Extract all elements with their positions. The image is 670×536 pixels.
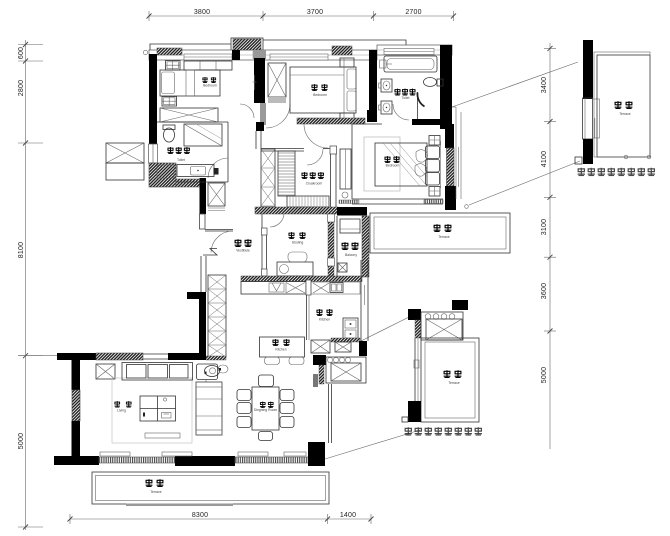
svg-text:Cloakroom: Cloakroom: [306, 182, 323, 186]
svg-text:Terrace: Terrace: [438, 235, 449, 239]
svg-text:4100: 4100: [541, 151, 548, 167]
svg-text:1400: 1400: [340, 512, 356, 519]
svg-text:8100: 8100: [18, 242, 25, 258]
svg-text:3700: 3700: [307, 9, 323, 16]
svg-text:Bedroom: Bedroom: [203, 84, 217, 88]
svg-text:Terrace: Terrace: [619, 112, 630, 116]
svg-text:Toilet: Toilet: [402, 96, 410, 100]
svg-text:3100: 3100: [541, 219, 548, 235]
svg-text:2700: 2700: [405, 9, 421, 16]
svg-text:Terrace: Terrace: [150, 490, 161, 494]
svg-text:Kitchen: Kitchen: [319, 318, 330, 322]
svg-text:3600: 3600: [541, 283, 548, 299]
svg-text:5000: 5000: [18, 433, 25, 449]
svg-text:Toilet: Toilet: [177, 158, 185, 162]
svg-text:8300: 8300: [192, 512, 208, 519]
svg-text:Vestibule: Vestibule: [236, 249, 250, 253]
svg-text:Balcony: Balcony: [345, 253, 357, 257]
svg-text:Bedroom: Bedroom: [313, 93, 327, 97]
svg-text:Bedroom: Bedroom: [386, 164, 400, 168]
svg-text:3400: 3400: [541, 77, 548, 93]
svg-text:Living: Living: [117, 409, 126, 413]
svg-text:Dingning Room: Dingning Room: [254, 408, 278, 412]
svg-text:600: 600: [18, 47, 25, 59]
svg-text:3800: 3800: [194, 9, 210, 16]
svg-text:Terrace: Terrace: [448, 381, 459, 385]
svg-text:Studing: Studing: [292, 241, 304, 245]
svg-text:5000: 5000: [541, 367, 548, 383]
svg-text:2800: 2800: [18, 80, 25, 96]
svg-text:Kitchen: Kitchen: [275, 348, 286, 352]
